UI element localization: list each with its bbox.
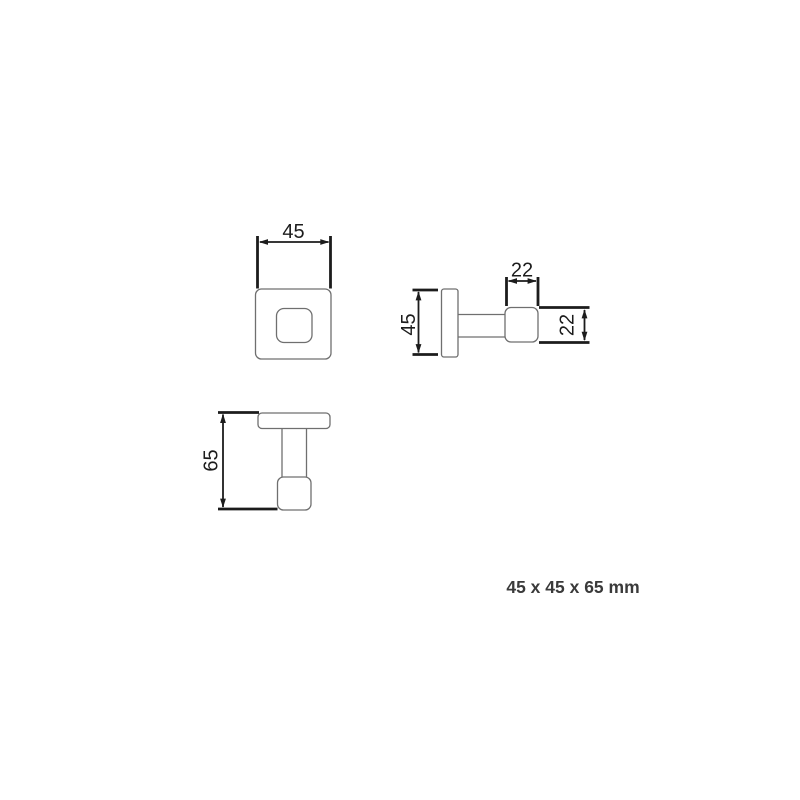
technical-drawing-page: 45 45 (0, 0, 800, 800)
side-hook-tip-outline (505, 308, 538, 343)
dimension-arrow (416, 344, 422, 353)
dimension-arrow (320, 239, 329, 245)
front-view: 45 (256, 221, 332, 359)
dimension-label-front-width: 45 (282, 221, 304, 243)
technical-drawing: 45 45 (0, 0, 800, 800)
profile-hook-tip-outline (278, 477, 312, 510)
dimension-arrow (220, 499, 226, 508)
side-view: 45 22 22 (398, 260, 590, 358)
dimension-arrow (259, 239, 268, 245)
side-hook-depth-dimension: 22 (507, 260, 539, 307)
profile-view: 65 (201, 413, 331, 511)
front-width-dimension: 45 (258, 221, 331, 289)
side-hook-height-dimension: 22 (539, 308, 590, 343)
side-plate-height-dimension: 45 (398, 290, 438, 355)
dimension-arrow (582, 309, 588, 318)
dimension-label-side-height: 45 (398, 313, 420, 335)
front-hook-tip-outline (277, 309, 313, 343)
profile-wall-plate-outline (258, 413, 330, 429)
dimension-arrow (582, 332, 588, 341)
dimension-arrow (220, 414, 226, 423)
dimension-label-hook-depth: 22 (511, 260, 533, 282)
side-wall-plate-outline (442, 289, 459, 357)
dimensions-caption: 45 x 45 x 65 mm (506, 577, 639, 597)
dimension-label-hook-height: 22 (557, 314, 579, 336)
dimension-label-overall-depth: 65 (201, 449, 223, 471)
dimension-arrow (416, 291, 422, 300)
